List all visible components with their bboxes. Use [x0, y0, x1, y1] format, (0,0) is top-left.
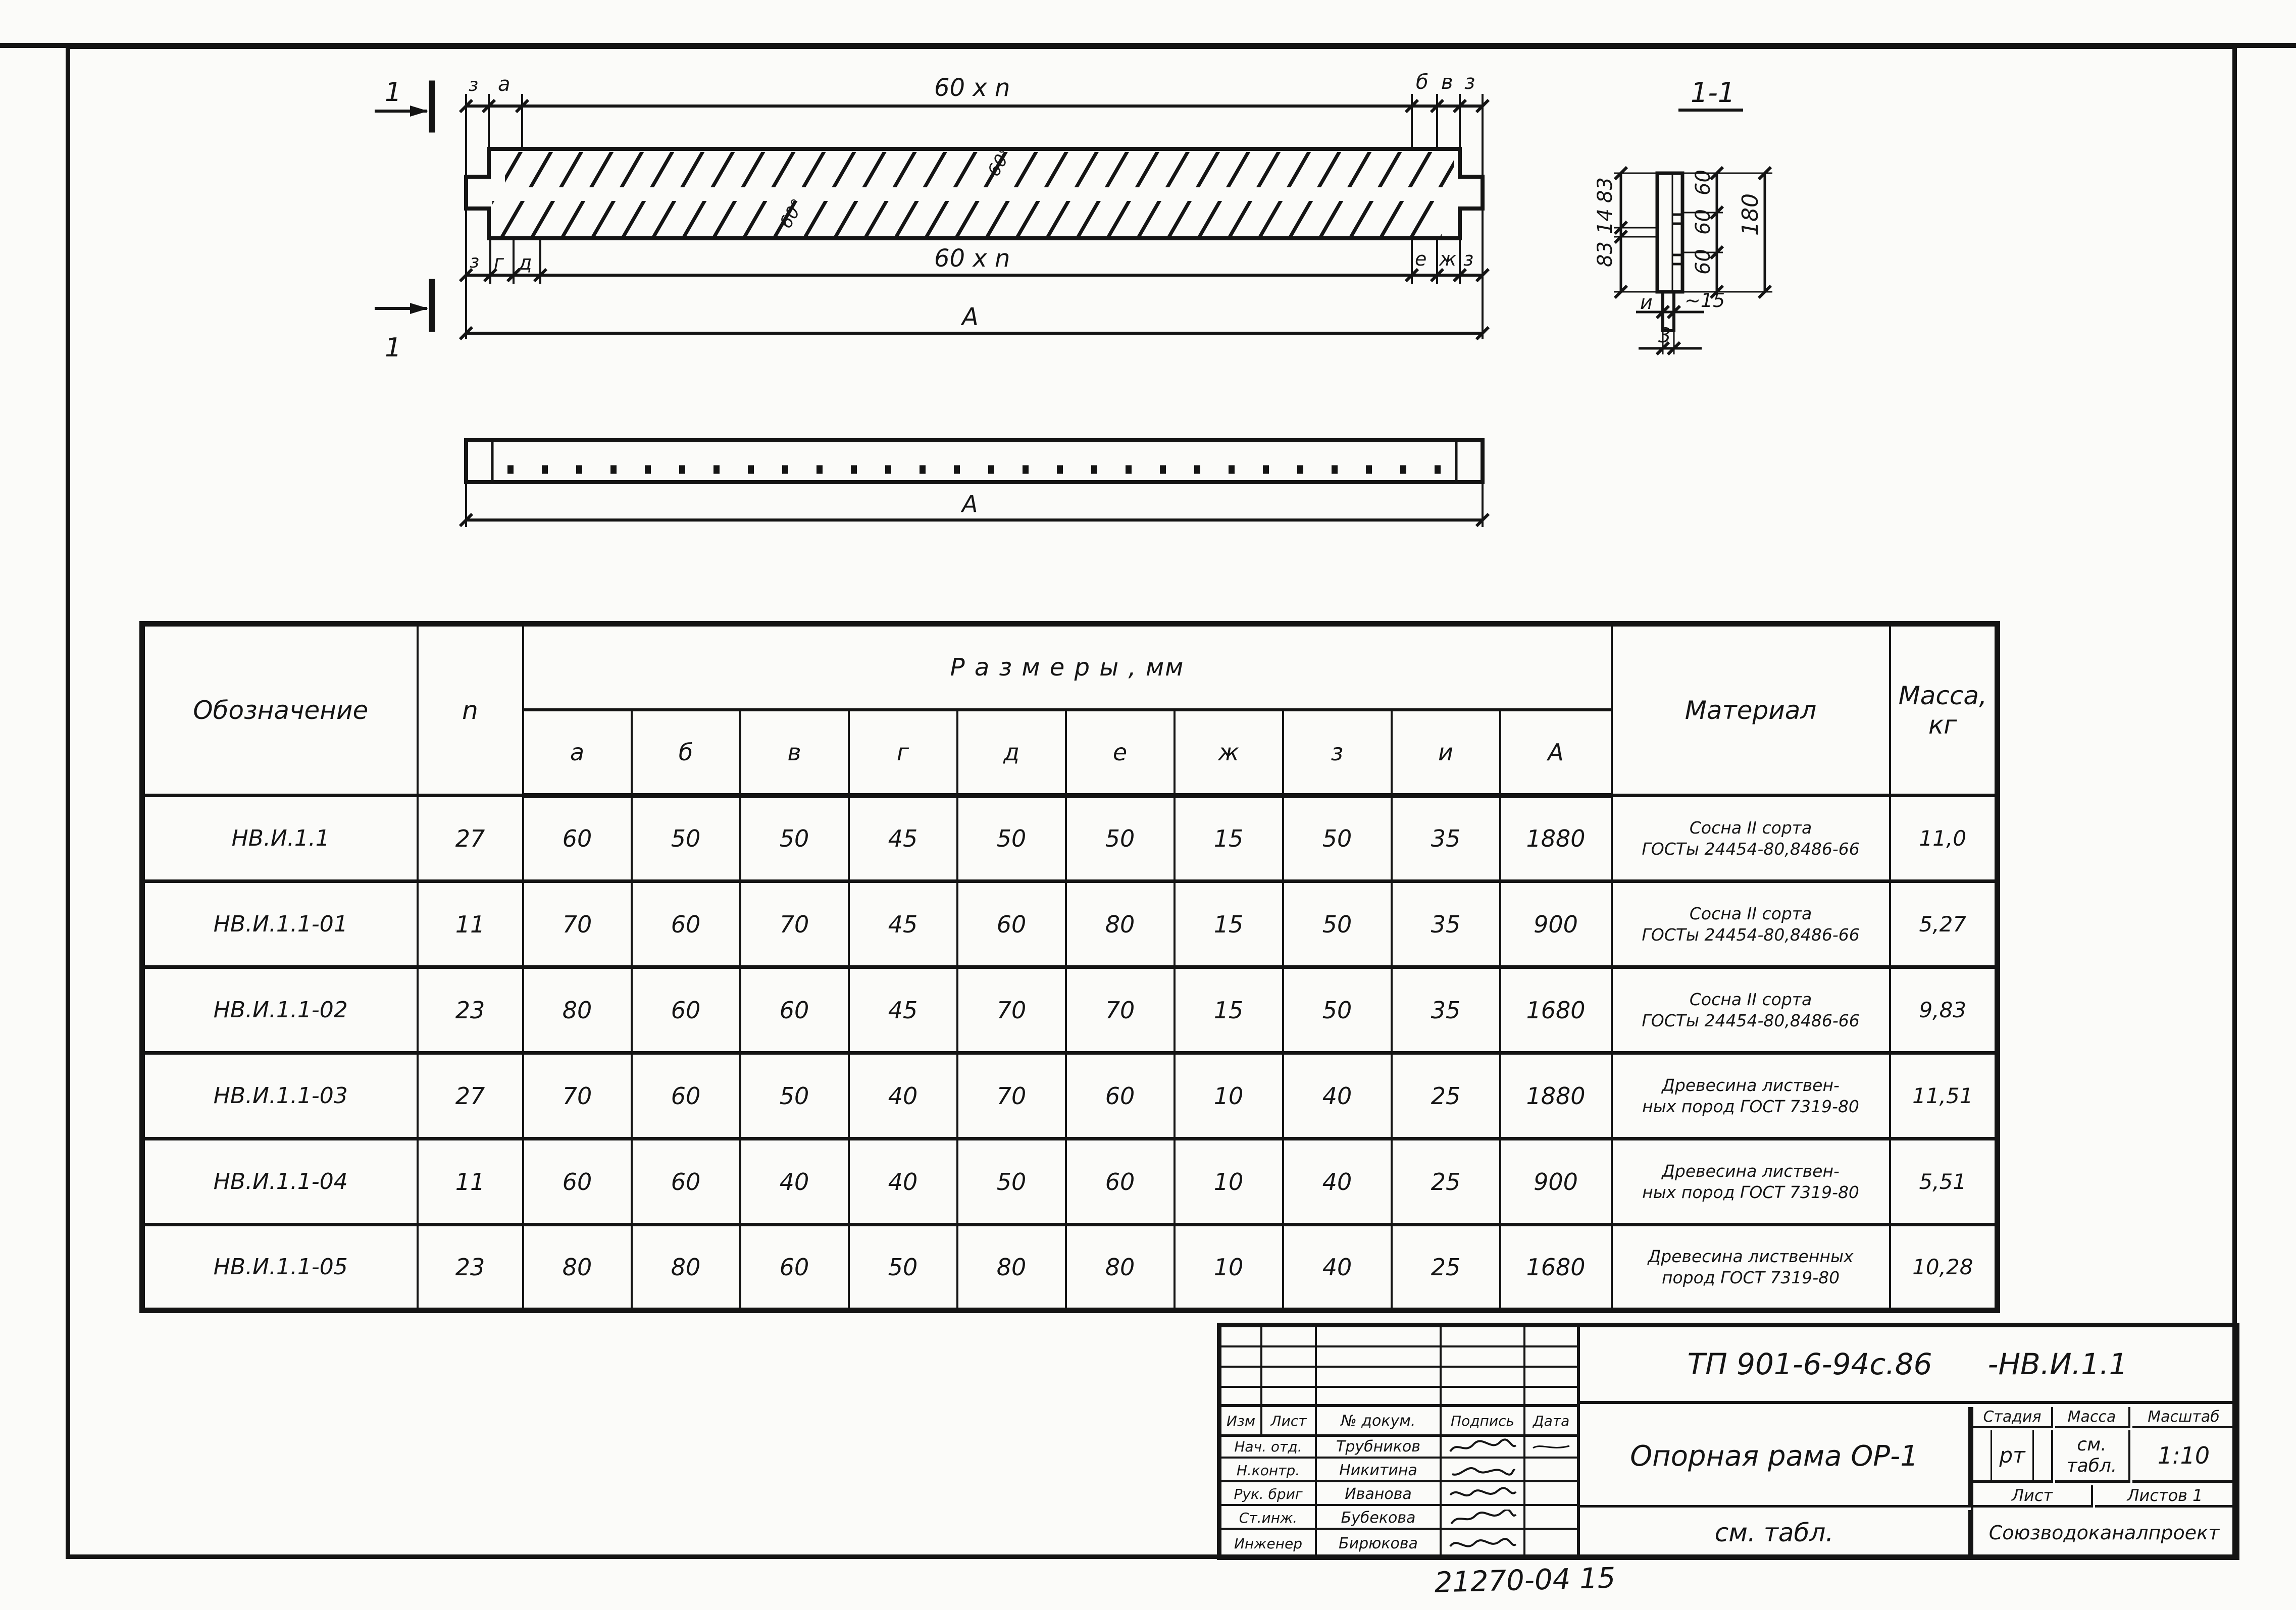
cell-material: Древесина листвен-ных пород ГОСТ 7319-80 [1612, 1053, 1890, 1139]
table-row: НВ.И.1.1-03 27 70 60 50 40 70 60 10 40 2… [142, 1053, 1998, 1139]
dim-label: з [1463, 248, 1473, 270]
dim-label: ж [1439, 248, 1456, 270]
grid-line [1971, 1407, 1973, 1555]
doc-code: ТП 901-6-94с.86 [1688, 1347, 1932, 1381]
cell-material: Древесина лиственныхпород ГОСТ 7319-80 [1612, 1225, 1890, 1311]
sig-signature [1442, 1532, 1523, 1555]
cell-size: 80 [632, 1225, 740, 1311]
sig-signature [1442, 1484, 1523, 1506]
cell-size: 70 [1066, 967, 1175, 1053]
cell-size: 60 [1066, 1139, 1175, 1225]
cell-size: 15 [1175, 967, 1283, 1053]
inventory-number: 21270-04 15 [1408, 1561, 1642, 1600]
cell-size: 1680 [1500, 967, 1612, 1053]
cell-designation: НВ.И.1.1-01 [142, 881, 418, 967]
sig-name: Никитина [1317, 1461, 1440, 1482]
stage-value: рт [1991, 1430, 2033, 1480]
cell-material: Древесина листвен-ных пород ГОСТ 7319-80 [1612, 1139, 1890, 1225]
cell-size: 10 [1175, 1053, 1283, 1139]
cell-size: 60 [523, 796, 632, 881]
cell-size: 900 [1500, 881, 1612, 967]
section-cut-marks [375, 81, 435, 332]
sig-name: Иванова [1317, 1484, 1440, 1506]
cell-size: 50 [740, 1053, 849, 1139]
cell-size: 35 [1392, 967, 1500, 1053]
cell-size: 40 [740, 1139, 849, 1225]
col-header-mass: Масса, кг [1890, 624, 1998, 796]
sig-date [1525, 1532, 1577, 1555]
drawing-sheet: 1 1 з а 60 x n [0, 0, 2296, 1610]
cell-size: 50 [957, 796, 1066, 881]
cell-size: 60 [957, 881, 1066, 967]
cell-n: 11 [418, 881, 523, 967]
col-header-material: Материал [1612, 624, 1890, 796]
dim-label: 14 [1594, 209, 1617, 234]
cell-material: Сосна II сортаГОСТы 24454-80,8486-66 [1612, 796, 1890, 881]
signature-scribble [1531, 1442, 1571, 1452]
cell-size: 25 [1392, 1225, 1500, 1311]
rev-header-ndoc: № докум. [1317, 1407, 1440, 1437]
cell-size: 25 [1392, 1053, 1500, 1139]
cell-size: 1680 [1500, 1225, 1612, 1311]
cell-size: 45 [849, 967, 957, 1053]
cell-designation: НВ.И.1.1 [142, 796, 418, 881]
col-header-g: г [849, 710, 957, 796]
col-header-z: з [1283, 710, 1392, 796]
cell-material: Сосна II сортаГОСТы 24454-80,8486-66 [1612, 881, 1890, 967]
cell-size: 35 [1392, 881, 1500, 967]
cell-designation: НВ.И.1.1-05 [142, 1225, 418, 1311]
cell-mass: 11,0 [1890, 796, 1998, 881]
cell-size: 35 [1392, 796, 1500, 881]
doc-code-suffix: -НВ.И.1.1 [1988, 1347, 2128, 1381]
sig-date [1525, 1484, 1577, 1506]
cell-n: 23 [418, 967, 523, 1053]
cell-n: 27 [418, 1053, 523, 1139]
rev-header-sign: Подпись [1442, 1407, 1523, 1437]
cell-size: 1880 [1500, 796, 1612, 881]
cell-mass: 10,28 [1890, 1225, 1998, 1311]
cell-size: 10 [1175, 1139, 1283, 1225]
cell-size: 80 [957, 1225, 1066, 1311]
dim-label: 60 x n [934, 244, 1010, 273]
drawing-title: Опорная рама ОР-1 [1580, 1407, 1971, 1508]
signature-scribble [1447, 1438, 1518, 1456]
dim-label-overall: А [960, 303, 979, 331]
cell-size: 15 [1175, 881, 1283, 967]
col-header-n: n [418, 624, 523, 796]
col-header-e: е [1066, 710, 1175, 796]
cut-label-bottom: 1 [385, 333, 401, 363]
cell-n: 23 [418, 1225, 523, 1311]
cell-size: 15 [1175, 796, 1283, 881]
dim-label: з [469, 75, 478, 95]
dim-label: г [494, 251, 504, 273]
cell-size: 50 [1283, 796, 1392, 881]
cell-size: 900 [1500, 1139, 1612, 1225]
cell-size: 45 [849, 881, 957, 967]
sheet-cell: Лист [1973, 1485, 2093, 1508]
sig-name: Трубников [1317, 1437, 1440, 1459]
signature-scribble [1447, 1462, 1518, 1479]
slot-hatch-bottom [492, 201, 1442, 236]
sheets-cell: Листов 1 [2095, 1485, 2235, 1508]
dim-label: 83 [1594, 177, 1617, 203]
sig-role: Рук. бриг [1221, 1484, 1315, 1506]
cell-size: 40 [1283, 1225, 1392, 1311]
cell-mass: 5,51 [1890, 1139, 1998, 1225]
section-title: 1-1 [1691, 77, 1735, 109]
cell-material: Сосна II сортаГОСТы 24454-80,8486-66 [1612, 967, 1890, 1053]
dim-label: з [1464, 71, 1475, 94]
sig-name: Бубекова [1317, 1508, 1440, 1530]
dim-label-overall: 180 [1738, 193, 1763, 236]
cell-size: 40 [1283, 1053, 1392, 1139]
cell-mass: 5,27 [1890, 881, 1998, 967]
dim-label: 60 [1692, 209, 1715, 235]
dim-label: 60 [1692, 249, 1715, 275]
col-header-d: д [957, 710, 1066, 796]
cell-size: 80 [1066, 881, 1175, 967]
dim-label: а [498, 73, 511, 96]
rev-header-date: Дата [1525, 1407, 1577, 1437]
cell-size: 50 [740, 796, 849, 881]
dim-label: 60 x n [934, 74, 1010, 102]
sig-date [1525, 1508, 1577, 1530]
mass-note-cell: см. табл. [1580, 1510, 1971, 1555]
cell-size: 25 [1392, 1139, 1500, 1225]
cell-size: 80 [1066, 1225, 1175, 1311]
dim-label-overall: А [960, 490, 978, 517]
cell-size: 40 [1283, 1139, 1392, 1225]
cell-size: 40 [849, 1053, 957, 1139]
stage-value-cell: рт [1973, 1430, 2053, 1483]
col-header-v: в [740, 710, 849, 796]
cell-size: 80 [523, 1225, 632, 1311]
dim-label: б [1416, 71, 1428, 94]
cell-size: 60 [740, 1225, 849, 1311]
cell-size: 70 [523, 881, 632, 967]
col-header-designation: Обозначение [142, 624, 418, 796]
dim-label: з [470, 251, 479, 272]
dim-label: 60 [1692, 170, 1715, 195]
cell-designation: НВ.И.1.1-03 [142, 1053, 418, 1139]
sig-date [1525, 1461, 1577, 1482]
cell-n: 27 [418, 796, 523, 881]
slot-hatch-top [505, 152, 1454, 187]
cell-designation: НВ.И.1.1-02 [142, 967, 418, 1053]
mass-value: см.табл. [2055, 1430, 2130, 1483]
sig-signature [1442, 1437, 1523, 1459]
cell-size: 60 [632, 1053, 740, 1139]
col-header-sizes: Р а з м е р ы , мм [523, 624, 1612, 710]
cell-size: 45 [849, 796, 957, 881]
title-block: Изм Лист № докум. Подпись Дата Нач. отд.… [1217, 1323, 2239, 1560]
cell-mass: 11,51 [1890, 1053, 1998, 1139]
sig-role: Нач. отд. [1221, 1437, 1315, 1459]
cell-size: 80 [523, 967, 632, 1053]
table-row: НВ.И.1.1-01 11 70 60 70 45 60 80 15 50 3… [142, 881, 1998, 967]
cell-size: 50 [957, 1139, 1066, 1225]
cell-size: 50 [849, 1225, 957, 1311]
signature-scribble [1447, 1535, 1518, 1552]
mass-label: Масса [2055, 1407, 2130, 1428]
organization-cell: Союзводоканалпроект [1973, 1510, 2235, 1555]
scale-value: 1:10 [2132, 1430, 2235, 1483]
mass-header-line1: Масса, [1894, 681, 1992, 710]
col-header-a: а [523, 710, 632, 796]
cell-designation: НВ.И.1.1-04 [142, 1139, 418, 1225]
sig-role: Ст.инж. [1221, 1508, 1315, 1530]
cell-size: 1880 [1500, 1053, 1612, 1139]
cell-size: 60 [1066, 1053, 1175, 1139]
cell-size: 60 [632, 1139, 740, 1225]
parts-table: Обозначение n Р а з м е р ы , мм Материа… [139, 621, 2000, 1313]
doc-code-cell: ТП 901-6-94с.86 -НВ.И.1.1 [1580, 1327, 2235, 1404]
sig-signature [1442, 1461, 1523, 1482]
table-row: НВ.И.1.1-02 23 80 60 60 45 70 70 15 50 3… [142, 967, 1998, 1053]
stage-label: Стадия [1973, 1407, 2053, 1428]
cell-size: 60 [740, 967, 849, 1053]
cell-size: 50 [1283, 967, 1392, 1053]
cell-size: 70 [957, 1053, 1066, 1139]
sig-role: Н.контр. [1221, 1461, 1315, 1482]
front-view [466, 149, 1483, 238]
dim-label: и [1640, 291, 1653, 314]
cut-arrow-bottom [410, 303, 428, 314]
cell-size: 70 [523, 1053, 632, 1139]
rev-header-list: Лист [1262, 1407, 1315, 1437]
dim-label: в [1441, 71, 1453, 94]
signature-scribble [1447, 1510, 1518, 1527]
table-row: НВ.И.1.1-04 11 60 60 40 40 50 60 10 40 2… [142, 1139, 1998, 1225]
cell-size: 70 [740, 881, 849, 967]
signature-scribble [1447, 1486, 1518, 1503]
sig-signature [1442, 1508, 1523, 1530]
sig-name: Бирюкова [1317, 1532, 1440, 1555]
col-header-i: и [1392, 710, 1500, 796]
cell-size: 40 [849, 1139, 957, 1225]
cell-size: 50 [1283, 881, 1392, 967]
cut-label-top: 1 [385, 77, 401, 108]
col-header-zh: ж [1175, 710, 1283, 796]
mass-header-line2: кг [1894, 710, 1992, 740]
cut-arrow-top [410, 106, 428, 117]
sig-role: Инженер [1221, 1532, 1315, 1555]
col-header-A: А [1500, 710, 1612, 796]
table-row: НВ.И.1.1-05 23 80 80 60 50 80 80 10 40 2… [142, 1225, 1998, 1311]
cell-size: 50 [632, 796, 740, 881]
sig-date [1525, 1437, 1577, 1459]
rev-header-izm: Изм [1221, 1407, 1260, 1437]
dim-label: 83 [1594, 241, 1617, 267]
scale-label: Масштаб [2132, 1407, 2235, 1428]
cell-mass: 9,83 [1890, 967, 1998, 1053]
dim-label: е [1415, 248, 1426, 270]
col-header-b: б [632, 710, 740, 796]
cell-n: 11 [418, 1139, 523, 1225]
table-row: НВ.И.1.1 27 60 50 50 45 50 50 15 50 35 1… [142, 796, 1998, 881]
cell-size: 60 [632, 881, 740, 967]
dim-label: д [518, 251, 532, 275]
cell-size: 50 [1066, 796, 1175, 881]
cell-size: 60 [632, 967, 740, 1053]
cell-size: 60 [523, 1139, 632, 1225]
dim-label: ~15 [1685, 289, 1725, 311]
cell-size: 70 [957, 967, 1066, 1053]
cell-size: 10 [1175, 1225, 1283, 1311]
dim-label: 3 [1658, 324, 1671, 347]
